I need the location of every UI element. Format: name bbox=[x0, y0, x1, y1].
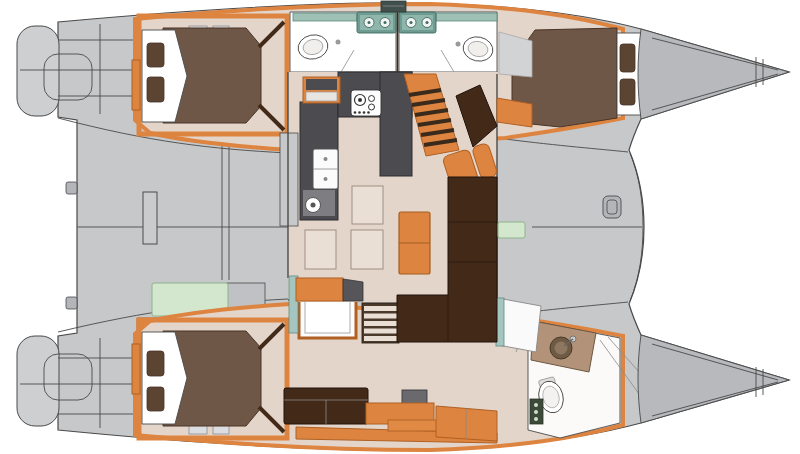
vanity-counter-left bbox=[293, 13, 357, 21]
salon bbox=[280, 32, 532, 346]
deck-fitting bbox=[603, 196, 621, 218]
floor-cushion bbox=[305, 230, 336, 269]
cockpit-door-opening bbox=[280, 133, 298, 226]
bedside-shelf bbox=[132, 344, 140, 394]
companionway-hatch bbox=[381, 1, 406, 12]
cabinet-top-light bbox=[306, 92, 337, 101]
cleat-lower bbox=[66, 297, 77, 309]
bows bbox=[638, 29, 789, 423]
shelf-item bbox=[534, 403, 538, 407]
pillow bbox=[147, 43, 164, 67]
stove-knob bbox=[358, 111, 361, 114]
lower-stern-cap bbox=[17, 336, 59, 426]
basin-drain bbox=[384, 21, 387, 24]
stair-tread bbox=[364, 306, 397, 311]
shelf-item bbox=[534, 410, 538, 414]
upper-bow-deck bbox=[638, 29, 789, 119]
stair-tread bbox=[364, 314, 397, 319]
pillow bbox=[147, 351, 164, 376]
basin-drain bbox=[410, 21, 413, 24]
round-basin-bowl bbox=[555, 342, 568, 355]
cabinet-top-dark bbox=[306, 79, 337, 90]
floor-cushion bbox=[352, 186, 383, 224]
stove-knob bbox=[363, 111, 366, 114]
aft-counter-wedge bbox=[343, 279, 363, 301]
lounge-cabinet bbox=[436, 406, 497, 441]
floor-plan-svg: catamaran-floor-plan bbox=[0, 0, 800, 454]
shelf-item bbox=[534, 417, 538, 421]
upper-stern-cap bbox=[17, 26, 59, 116]
lower-bow-deck bbox=[638, 335, 789, 423]
catamaran-floor-plan-image: catamaran-floor-plan bbox=[0, 0, 800, 454]
sink-drain bbox=[324, 157, 328, 161]
round-sink-drain bbox=[311, 203, 316, 208]
stair-tread bbox=[364, 321, 397, 326]
pillow bbox=[147, 77, 164, 102]
pillow bbox=[147, 387, 164, 411]
head-door-panel bbox=[498, 299, 541, 352]
faucet bbox=[336, 40, 341, 45]
cockpit-table bbox=[143, 192, 157, 244]
aft-cabinet bbox=[296, 278, 343, 301]
stove-knob bbox=[354, 111, 357, 114]
vanity-counter-right bbox=[436, 13, 497, 21]
twin-basin-unit-left bbox=[357, 12, 396, 33]
cleat-upper bbox=[66, 182, 77, 194]
stairs-to-lower-hull bbox=[362, 303, 399, 343]
stair-tread bbox=[364, 336, 397, 341]
faucet bbox=[456, 42, 461, 47]
basin-drain bbox=[426, 21, 429, 24]
pillow bbox=[620, 44, 635, 72]
upper-hull-heads bbox=[290, 1, 497, 72]
shower-box-inner bbox=[305, 301, 350, 333]
bedside-shelf bbox=[132, 60, 140, 110]
basin-drain bbox=[368, 21, 371, 24]
sink-drain bbox=[324, 177, 328, 181]
gas-stove bbox=[351, 90, 381, 116]
side-seat-green-cushion bbox=[498, 222, 525, 238]
stove-burner-center bbox=[358, 98, 362, 102]
stove-knob bbox=[367, 111, 370, 114]
twin-basin-unit-right bbox=[399, 12, 436, 33]
floor-cushion bbox=[351, 230, 383, 269]
stair-tread bbox=[364, 329, 397, 334]
desk-step bbox=[388, 420, 437, 431]
pillow bbox=[620, 79, 635, 105]
galley-cabinet bbox=[303, 77, 340, 103]
